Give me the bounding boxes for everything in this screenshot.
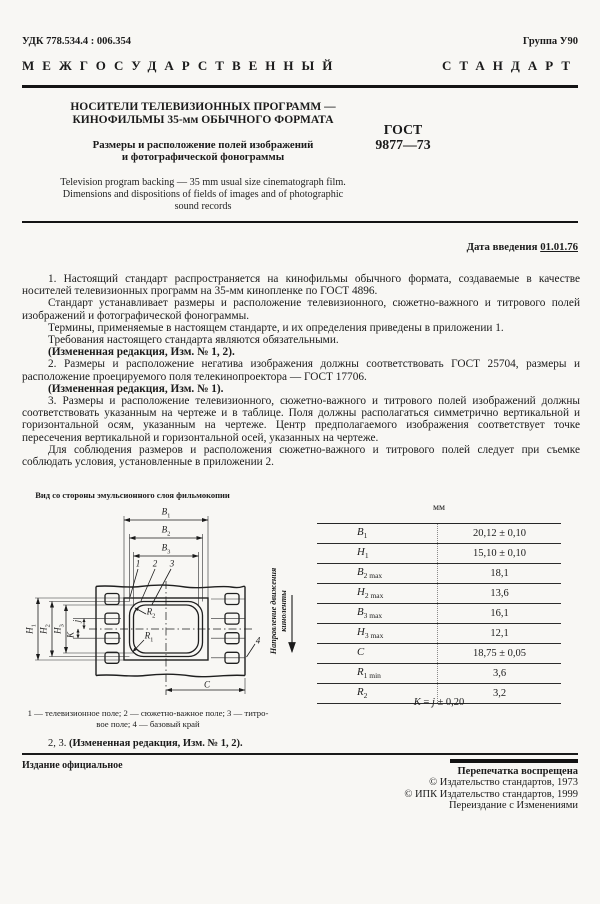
document-subtitle: Размеры и расположение полей изображений… (38, 139, 368, 163)
copyright-1973: © Издательство стандартов, 1973 (404, 777, 578, 788)
dim-label-b1: B1 (162, 508, 171, 521)
amendment-note-1: (Измененная редакция, Изм. № 1, 2). (22, 346, 580, 358)
field-callout-4: 4 (256, 637, 261, 646)
table-row: H3 max12,1 (317, 624, 561, 644)
dim-label-k: K (67, 632, 76, 638)
value-cell: 12,1 (437, 624, 561, 643)
amendment-note-2: (Измененная редакция, Изм. № 1). (22, 383, 580, 395)
gost-label: ГОСТ (357, 122, 449, 137)
paragraph-6: 3. Размеры и расположение телевизионного… (22, 395, 580, 444)
value-cell: 18,1 (437, 564, 561, 583)
title-block: НОСИТЕЛИ ТЕЛЕВИЗИОННЫХ ПРОГРАММ — КИНОФИ… (38, 101, 368, 213)
dim-label-r1: R1 (145, 632, 154, 645)
value-cell: 20,12 ± 0,10 (437, 524, 561, 543)
param-cell: B2 max (317, 566, 437, 580)
table-row: B3 max16,1 (317, 604, 561, 624)
paragraph-2: Стандарт устанавливает размеры и располо… (22, 297, 580, 321)
paragraph-5: 2. Размеры и расположение негатива изобр… (22, 358, 580, 382)
param-cell: H2 max (317, 586, 437, 600)
horizontal-rule-top (22, 85, 578, 88)
dim-label-h2: H2 (40, 624, 53, 634)
horizontal-rule-footer (22, 753, 578, 755)
param-cell: B1 (317, 526, 437, 540)
copyright-block: Перепечатка воспрещена © Издательство ст… (404, 766, 578, 811)
field-callout-1: 1 (136, 560, 141, 569)
film-direction-label: Направление движения киноленты (269, 559, 289, 663)
field-callout-3: 3 (170, 560, 175, 569)
value-cell: 15,10 ± 0,10 (437, 544, 561, 563)
group-code: Группа У90 (523, 36, 578, 47)
paragraph-4: Требования настоящего стандарта являются… (22, 334, 580, 346)
table-row: H2 max13,6 (317, 584, 561, 604)
dim-label-c: C (204, 681, 210, 690)
dim-label-h3: H3 (54, 624, 67, 634)
dim-label-j: j (73, 620, 82, 623)
extension-lines (35, 516, 245, 694)
document-page: { "header": { "udk": "УДК 778.534.4 : 00… (0, 0, 600, 904)
standard-type-word1: МЕЖГОСУДАРСТВЕННЫЙ (22, 58, 340, 74)
effective-date-value: 01.01.76 (540, 241, 578, 253)
param-cell: H1 (317, 546, 437, 560)
dim-label-r2: R2 (147, 608, 156, 621)
dim-label-b3: B3 (162, 544, 171, 557)
param-cell: H3 max (317, 626, 437, 640)
table-row: B2 max18,1 (317, 564, 561, 584)
body-text: 1. Настоящий стандарт распространяется н… (22, 273, 580, 468)
value-cell: 3,6 (437, 664, 561, 683)
udk-code: УДК 778.534.4 : 006.354 (22, 36, 131, 47)
table-unit-label: мм (317, 503, 561, 513)
film-frame-figure: B1 B2 B3 H1 H2 H3 j K R2 R1 C 1 2 3 4 На… (25, 495, 305, 710)
paragraph-7: Для соблюдения размеров и расположения с… (22, 444, 580, 468)
dimensions-table: B120,12 ± 0,10 H115,10 ± 0,10 B2 max18,1… (317, 523, 561, 704)
value-cell: 13,6 (437, 584, 561, 603)
standard-type-heading: МЕЖГОСУДАРСТВЕННЫЙ СТАНДАРТ (22, 58, 578, 74)
value-cell: 16,1 (437, 604, 561, 623)
table-row: H115,10 ± 0,10 (317, 544, 561, 564)
table-row: B120,12 ± 0,10 (317, 524, 561, 544)
reprint-forbidden-label: Перепечатка воспрещена (404, 766, 578, 777)
reissue-note: Переиздание с Изменениями (404, 800, 578, 811)
copyright-1999: © ИПК Издательство стандартов, 1999 (404, 789, 578, 800)
amendment-note: 2, 3. (Измененная редакция, Изм. № 1, 2)… (48, 738, 243, 749)
param-cell: C (317, 646, 437, 660)
footer-thick-mark (450, 759, 578, 763)
field-callout-2: 2 (153, 560, 158, 569)
param-cell: R1 min (317, 666, 437, 680)
gost-designation: ГОСТ 9877—73 (357, 122, 449, 152)
effective-date: Дата введения 01.01.76 (467, 241, 578, 253)
dim-label-h1: H1 (26, 624, 39, 634)
table-row: R1 min3,6 (317, 664, 561, 684)
gost-number: 9877—73 (357, 137, 449, 152)
table-row: C18,75 ± 0,05 (317, 644, 561, 664)
horizontal-rule-title (22, 221, 578, 223)
english-title: Television program backing — 35 mm usual… (38, 177, 368, 213)
paragraph-3: Термины, применяемые в настоящем стандар… (22, 322, 580, 334)
document-title: НОСИТЕЛИ ТЕЛЕВИЗИОННЫХ ПРОГРАММ — КИНОФИ… (38, 101, 368, 127)
figure-legend: 1 — телевизионное поле; 2 — сюжетно-важн… (26, 708, 270, 730)
standard-type-word2: СТАНДАРТ (442, 58, 578, 74)
value-cell: 18,75 ± 0,05 (437, 644, 561, 663)
table-note: K = j ± 0,20 (317, 697, 561, 708)
param-cell: B3 max (317, 606, 437, 620)
dim-label-b2: B2 (162, 526, 171, 539)
paragraph-1: 1. Настоящий стандарт распространяется н… (22, 273, 580, 297)
classification-row: УДК 778.534.4 : 006.354 Группа У90 (22, 36, 578, 47)
official-edition-label: Издание официальное (22, 760, 123, 771)
